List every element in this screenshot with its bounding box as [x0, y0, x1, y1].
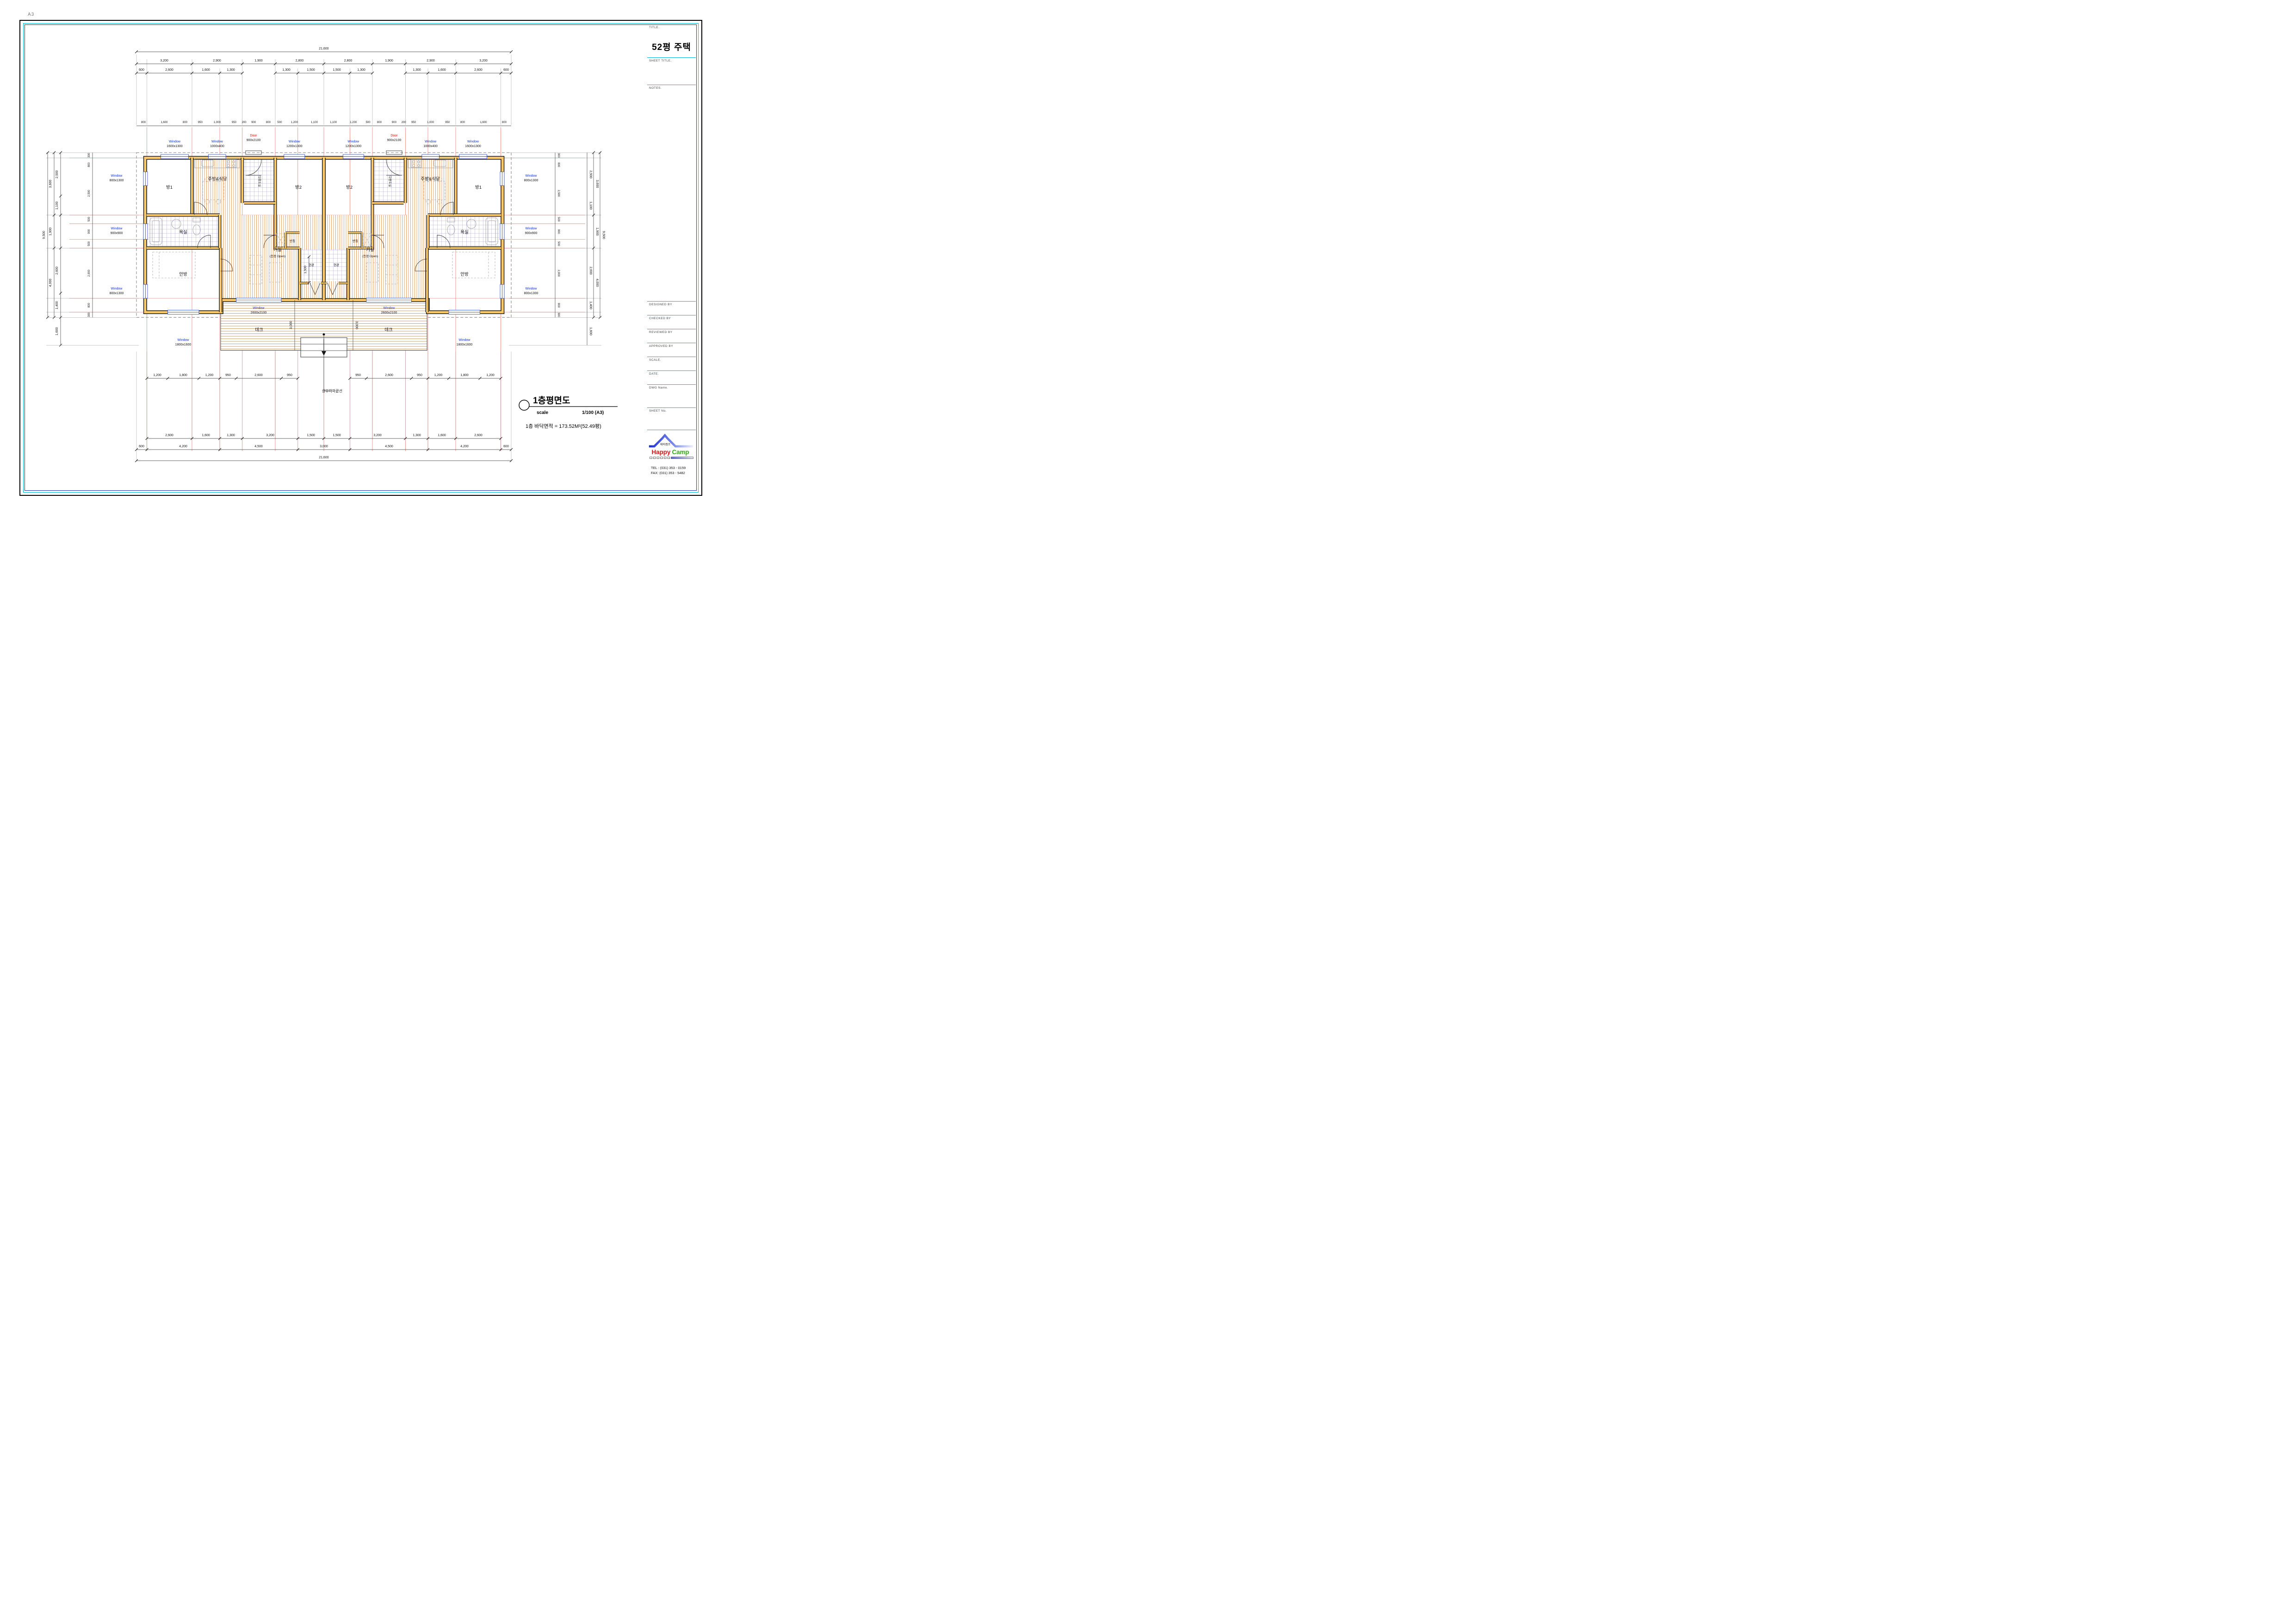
happy-camp-logo: 해피캠프 Happy Camp: [647, 430, 696, 463]
svg-text:1,600: 1,600: [202, 434, 210, 437]
svg-text:1,800: 1,800: [460, 374, 469, 377]
svg-text:1,600: 1,600: [480, 121, 487, 124]
svg-text:Window: Window: [111, 174, 123, 178]
room-label: 주방&식당: [208, 177, 227, 182]
svg-text:2,600: 2,600: [165, 434, 173, 437]
svg-text:200: 200: [402, 121, 407, 124]
room-label: 안방: [460, 272, 469, 277]
dim-right: 9,500 3,600 1,900 4,000 2,500 1,100 2,60…: [555, 151, 605, 345]
svg-text:3,200: 3,200: [373, 434, 382, 437]
svg-text:2,500: 2,500: [88, 190, 91, 197]
svg-text:2,600: 2,600: [474, 68, 483, 72]
dim-left: 9,500 3,600 1,900 4,000 2,500 1,100 2,60…: [43, 151, 93, 346]
svg-text:2,500: 2,500: [589, 170, 592, 179]
svg-text:Window: Window: [526, 227, 538, 230]
svg-text:800x1300: 800x1300: [110, 292, 124, 295]
room-label: 반침: [353, 239, 358, 243]
svg-text:800: 800: [183, 121, 188, 124]
svg-text:1800x1600: 1800x1600: [457, 343, 473, 346]
svg-text:900: 900: [88, 229, 91, 234]
sheet-no-cell: SHEET No.: [647, 408, 696, 430]
svg-text:500: 500: [88, 216, 91, 222]
svg-text:Window: Window: [526, 287, 538, 290]
svg-text:800: 800: [141, 121, 146, 124]
svg-text:Window: Window: [526, 174, 538, 178]
window-icon: [422, 154, 439, 159]
floor-plan-canvas: 방1 방1 주방&식당 주방&식당 다용도실 다용도실 방2 방2 반침 반침 …: [0, 0, 723, 511]
svg-text:Window: Window: [459, 339, 471, 342]
svg-text:Window: Window: [347, 140, 359, 143]
room-label: 거실: [273, 247, 281, 253]
drawing-title-text: 1층평면도: [533, 395, 570, 406]
svg-text:1,500: 1,500: [307, 434, 315, 437]
svg-text:21,600: 21,600: [319, 456, 329, 459]
svg-text:1000x400: 1000x400: [423, 145, 438, 148]
notes-cell: NOTES.: [647, 85, 696, 302]
svg-text:2,600: 2,600: [56, 266, 59, 275]
room-label: 현관: [309, 263, 314, 267]
window-icon: [236, 298, 281, 302]
room-label: 거실: [366, 247, 374, 253]
room-label: 안방: [179, 272, 187, 277]
svg-text:2,600: 2,600: [474, 434, 483, 437]
window-icon: [284, 154, 305, 159]
svg-text:600: 600: [139, 445, 144, 448]
designed-by-cell: DESIGNED BY: [647, 302, 696, 315]
svg-text:2,600: 2,600: [589, 266, 592, 275]
svg-text:1,300: 1,300: [282, 68, 291, 72]
svg-text:Window: Window: [384, 307, 396, 310]
approved-by-cell: APPROVED BY: [647, 343, 696, 357]
svg-text:2,500: 2,500: [557, 190, 560, 197]
svg-text:1200x1300: 1200x1300: [345, 145, 361, 148]
logo-word-happy: Happy: [652, 449, 671, 456]
svg-text:1,300: 1,300: [357, 68, 365, 72]
svg-text:4,500: 4,500: [385, 445, 393, 448]
svg-text:Window: Window: [169, 140, 181, 143]
svg-text:1,600: 1,600: [202, 68, 210, 72]
svg-text:Window: Window: [253, 307, 265, 310]
svg-text:1,100: 1,100: [311, 121, 318, 124]
svg-text:4,200: 4,200: [460, 445, 469, 448]
window-icon: [500, 172, 504, 185]
svg-text:2,900: 2,900: [88, 269, 91, 277]
svg-text:500: 500: [557, 217, 560, 222]
svg-text:1,900: 1,900: [595, 228, 599, 236]
svg-text:900x2100: 900x2100: [387, 139, 402, 142]
svg-text:4,200: 4,200: [179, 445, 187, 448]
title-block: TITLE. 52평 주택 SHEET TITLE. NOTES. DESIGN…: [647, 25, 696, 490]
drawing-scale-label: scale: [537, 410, 548, 415]
window-icon: [143, 284, 148, 298]
room-label: 방1: [475, 185, 482, 190]
svg-text:950: 950: [225, 374, 231, 377]
svg-text:1,500: 1,500: [304, 265, 307, 274]
svg-text:500: 500: [557, 241, 560, 247]
svg-text:2,600: 2,600: [385, 374, 393, 377]
svg-text:900x2100: 900x2100: [247, 139, 261, 142]
room-label: 반침: [290, 239, 295, 243]
svg-text:900: 900: [392, 121, 397, 124]
svg-text:1,500: 1,500: [333, 68, 341, 72]
svg-text:2,800: 2,800: [344, 59, 353, 62]
drawing-title: 1층평면도 scale 1/100 (A3) 1층 바닥면적 = 173.52M…: [519, 395, 618, 429]
room-label: (천정 Open): [362, 254, 378, 258]
svg-text:4,000: 4,000: [595, 279, 599, 287]
svg-text:800x1300: 800x1300: [110, 179, 124, 182]
checked-by-cell: CHECKED BY: [647, 315, 696, 329]
svg-text:Window: Window: [111, 227, 123, 230]
tel-text: TEL : (031) 353 - 0159: [651, 466, 696, 470]
window-icon: [161, 154, 189, 159]
svg-text:9,500: 9,500: [602, 231, 605, 239]
svg-text:3,200: 3,200: [479, 59, 488, 62]
svg-text:Window: Window: [111, 287, 123, 290]
svg-text:1,300: 1,300: [227, 434, 235, 437]
svg-text:1,600: 1,600: [56, 327, 59, 335]
svg-text:2,600: 2,600: [254, 374, 263, 377]
svg-text:600: 600: [503, 445, 509, 448]
svg-text:300: 300: [88, 312, 91, 317]
svg-text:950: 950: [417, 374, 422, 377]
window-icon: [366, 298, 412, 302]
svg-text:1,900: 1,900: [254, 59, 263, 62]
svg-text:600: 600: [503, 68, 509, 72]
svg-text:1,200: 1,200: [486, 374, 495, 377]
svg-text:3,200: 3,200: [266, 434, 274, 437]
svg-text:1,600: 1,600: [438, 68, 446, 72]
svg-text:800: 800: [502, 121, 507, 124]
room-label: 욕실: [179, 230, 187, 235]
project-title: 52평 주택: [647, 40, 696, 53]
svg-text:600: 600: [139, 68, 144, 72]
room-label: 욕실: [460, 230, 468, 235]
scale-cell: SCALE.: [647, 357, 696, 371]
svg-text:1,300: 1,300: [413, 434, 421, 437]
svg-text:800: 800: [88, 162, 91, 167]
room-label: 방2: [295, 185, 302, 190]
svg-text:300: 300: [557, 313, 560, 318]
svg-text:800: 800: [557, 303, 560, 308]
svg-text:1,000: 1,000: [427, 121, 434, 124]
svg-text:950: 950: [287, 374, 292, 377]
svg-text:2600x2100: 2600x2100: [251, 311, 267, 315]
room-label: 주방&식당: [421, 177, 440, 182]
svg-text:Window: Window: [178, 339, 190, 342]
svg-text:1,100: 1,100: [330, 121, 337, 124]
window-icon: [209, 154, 226, 159]
svg-text:1,600: 1,600: [589, 327, 592, 336]
room-label: 데크: [384, 327, 393, 333]
svg-text:1,200: 1,200: [153, 374, 161, 377]
svg-text:4,500: 4,500: [254, 445, 263, 448]
svg-text:1,600: 1,600: [438, 434, 446, 437]
svg-text:950: 950: [445, 121, 450, 124]
window-icon: [500, 284, 504, 298]
room-label: 데크: [255, 327, 263, 333]
svg-text:1000x400: 1000x400: [210, 145, 224, 148]
room-label: 방2: [346, 185, 353, 190]
svg-text:1200x1300: 1200x1300: [286, 145, 303, 148]
dwg-name-cell: DWG Name.: [647, 385, 696, 408]
eaves-note: 상부처마끝선: [322, 389, 342, 393]
window-icon: [168, 310, 199, 315]
fax-text: FAX: (031) 353 - 5482: [651, 471, 696, 475]
svg-text:Window: Window: [289, 140, 301, 143]
svg-text:900x900: 900x900: [525, 232, 538, 235]
window-icon: [449, 310, 480, 315]
svg-text:500: 500: [277, 121, 282, 124]
svg-text:200: 200: [242, 121, 247, 124]
svg-text:21,600: 21,600: [319, 47, 329, 50]
date-cell: DATE.: [647, 371, 696, 385]
svg-text:1,400: 1,400: [56, 301, 59, 309]
svg-text:2600x2100: 2600x2100: [381, 311, 397, 315]
svg-text:1,100: 1,100: [589, 202, 592, 210]
svg-text:1,200: 1,200: [434, 374, 443, 377]
svg-text:2,900: 2,900: [213, 59, 221, 62]
logo-cell: 해피캠프 Happy Camp TEL : (031) 353 - 0159 F…: [647, 430, 696, 490]
svg-text:1,300: 1,300: [227, 68, 235, 72]
svg-text:3,200: 3,200: [160, 59, 168, 62]
svg-text:300: 300: [557, 153, 560, 158]
sheet-title-cell: SHEET TITLE.: [647, 58, 696, 85]
logo-word-camp: Camp: [672, 449, 689, 456]
window-icon: [459, 154, 487, 159]
svg-text:1600x1300: 1600x1300: [465, 145, 481, 148]
logo-korean: 해피캠프: [660, 443, 671, 446]
svg-text:9,500: 9,500: [43, 231, 46, 239]
svg-text:1,200: 1,200: [205, 374, 214, 377]
svg-text:950: 950: [355, 374, 361, 377]
svg-text:950: 950: [411, 121, 416, 124]
window-icon: [143, 172, 148, 185]
svg-text:Window: Window: [211, 140, 223, 143]
window-icon: [343, 154, 364, 159]
svg-text:2,800: 2,800: [296, 59, 304, 62]
svg-text:3,000: 3,000: [355, 321, 358, 329]
svg-text:1,900: 1,900: [385, 59, 393, 62]
room-label: 다용도실: [258, 176, 262, 187]
window-icon: [500, 224, 504, 240]
drawing-scale-value: 1/100 (A3): [582, 410, 604, 415]
svg-text:1,800: 1,800: [179, 374, 187, 377]
svg-text:3,000: 3,000: [320, 445, 328, 448]
room-label: 방1: [166, 185, 173, 190]
room-label: 다용도실: [388, 176, 392, 187]
svg-text:1,500: 1,500: [333, 434, 341, 437]
svg-text:1,300: 1,300: [413, 68, 421, 72]
svg-text:3,600: 3,600: [49, 180, 52, 188]
svg-text:3,000: 3,000: [290, 321, 293, 329]
svg-text:1,600: 1,600: [161, 121, 168, 124]
svg-text:Door: Door: [390, 134, 398, 137]
svg-text:1600x1300: 1600x1300: [167, 145, 183, 148]
svg-text:900x900: 900x900: [111, 232, 123, 235]
svg-text:900: 900: [251, 121, 256, 124]
svg-text:Door: Door: [250, 134, 257, 137]
svg-text:2,900: 2,900: [427, 59, 435, 62]
svg-text:Window: Window: [467, 140, 479, 143]
svg-text:2,900: 2,900: [557, 270, 560, 277]
svg-text:800x1300: 800x1300: [524, 179, 538, 182]
svg-text:1,900: 1,900: [49, 228, 52, 236]
reviewed-by-cell: REVIEWED BY: [647, 329, 696, 343]
svg-text:Window: Window: [425, 140, 437, 143]
svg-text:500: 500: [366, 121, 371, 124]
svg-text:1,200: 1,200: [350, 121, 357, 124]
svg-text:1,100: 1,100: [56, 202, 59, 210]
svg-text:300: 300: [88, 153, 91, 158]
svg-text:1,200: 1,200: [291, 121, 298, 124]
svg-text:950: 950: [232, 121, 237, 124]
svg-text:800: 800: [88, 302, 91, 308]
svg-text:1800x1600: 1800x1600: [175, 343, 192, 346]
svg-text:800: 800: [460, 121, 465, 124]
svg-text:1,500: 1,500: [307, 68, 315, 72]
window-icon: [143, 224, 148, 240]
svg-text:1,000: 1,000: [214, 121, 221, 124]
title-cell: TITLE. 52평 주택: [647, 25, 696, 58]
svg-text:3,600: 3,600: [595, 180, 599, 188]
svg-text:2,500: 2,500: [56, 170, 59, 179]
svg-text:2,600: 2,600: [165, 68, 173, 72]
svg-text:1,400: 1,400: [589, 301, 592, 309]
svg-text:800: 800: [266, 121, 271, 124]
svg-text:800: 800: [557, 162, 560, 167]
svg-text:950: 950: [198, 121, 203, 124]
svg-text:500: 500: [88, 241, 91, 246]
svg-text:800: 800: [377, 121, 382, 124]
title-label: TITLE.: [647, 25, 696, 29]
drawing-sheet: A3: [0, 0, 723, 511]
floor-area-text: 1층 바닥면적 = 173.52M²(52.49평): [526, 423, 601, 429]
room-label: (천정 Open): [270, 254, 285, 258]
room-label: 현관: [334, 263, 339, 267]
svg-text:900: 900: [557, 229, 560, 235]
svg-text:800x1300: 800x1300: [524, 292, 538, 295]
svg-text:4,000: 4,000: [49, 278, 52, 287]
